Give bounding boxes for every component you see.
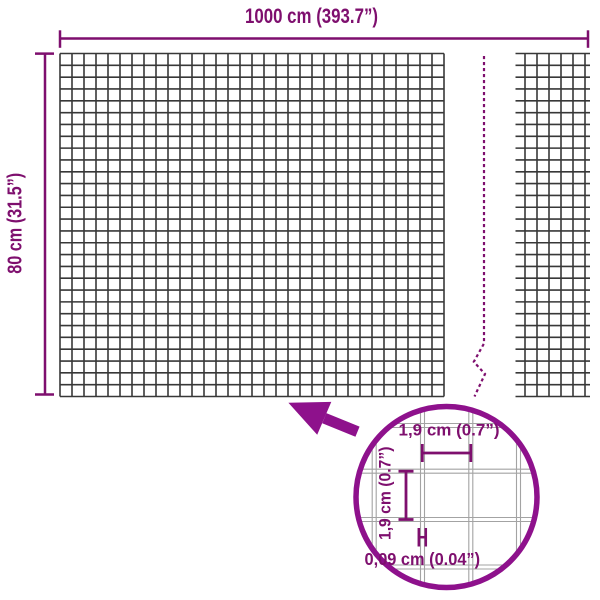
svg-text:1,9 cm (0.7”): 1,9 cm (0.7”) [376, 447, 395, 541]
svg-text:80 cm (31.5”): 80 cm (31.5”) [3, 173, 26, 274]
svg-text:0,09 cm (0.04”): 0,09 cm (0.04”) [365, 549, 481, 569]
svg-text:1,9 cm (0.7”): 1,9 cm (0.7”) [399, 421, 500, 440]
svg-text:1000 cm (393.7”): 1000 cm (393.7”) [245, 4, 378, 28]
